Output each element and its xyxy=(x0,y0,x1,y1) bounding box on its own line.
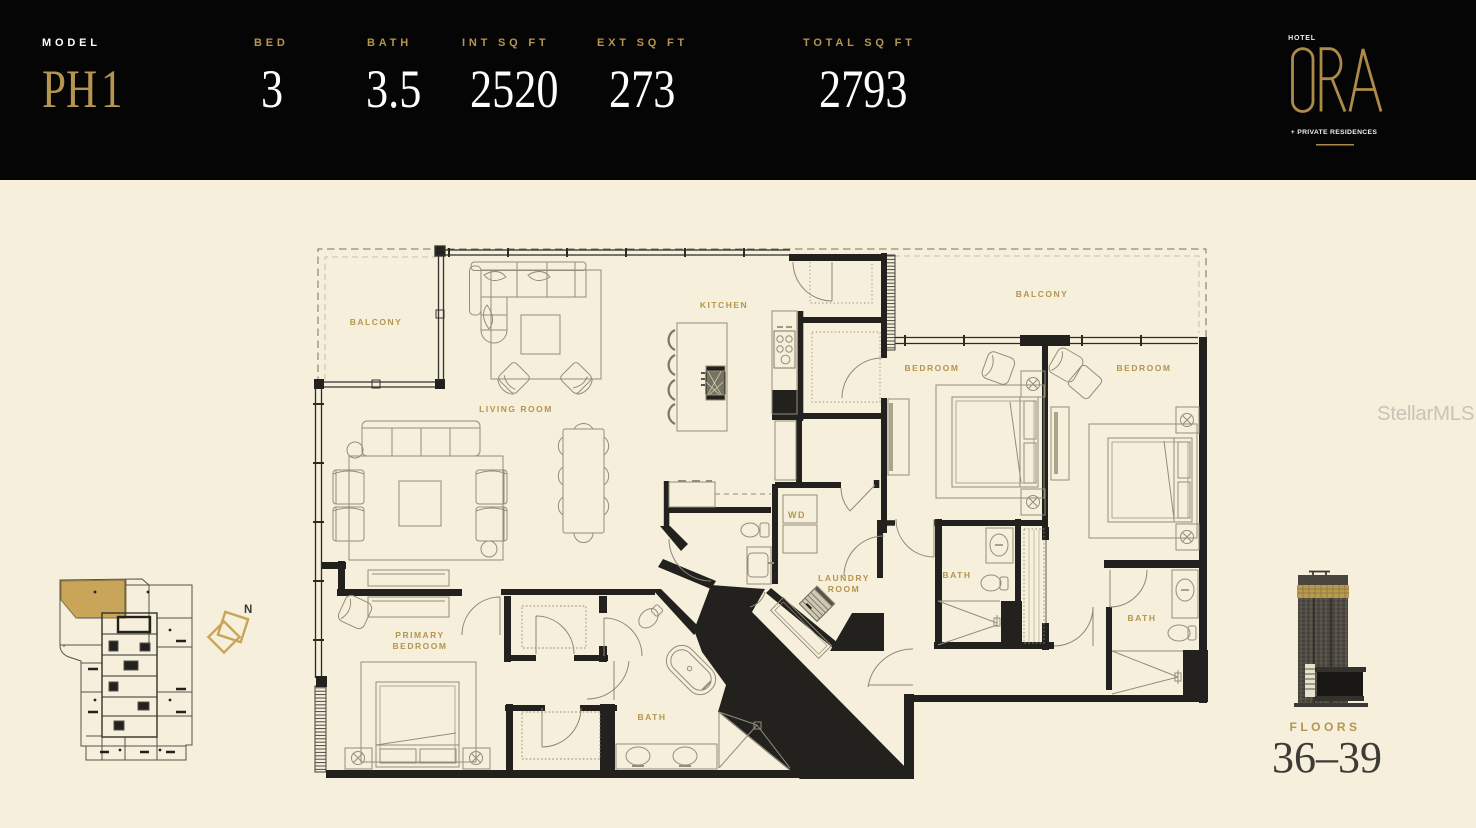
svg-text:KITCHEN: KITCHEN xyxy=(700,300,748,310)
svg-text:36–39: 36–39 xyxy=(1272,733,1382,782)
svg-text:BEDROOM: BEDROOM xyxy=(1117,363,1172,373)
svg-text:BATH: BATH xyxy=(638,712,667,722)
svg-text:BATH: BATH xyxy=(943,570,972,580)
svg-text:PRIMARY: PRIMARY xyxy=(395,630,444,640)
svg-text:StellarMLS: StellarMLS xyxy=(1377,402,1474,425)
svg-text:BEDROOM: BEDROOM xyxy=(905,363,960,373)
svg-text:BALCONY: BALCONY xyxy=(1016,289,1069,299)
svg-text:LIVING ROOM: LIVING ROOM xyxy=(479,404,553,414)
svg-text:ROOM: ROOM xyxy=(828,584,860,594)
svg-text:N: N xyxy=(244,604,252,616)
svg-text:BATH: BATH xyxy=(1128,613,1157,623)
svg-text:WD: WD xyxy=(788,510,806,520)
svg-text:BALCONY: BALCONY xyxy=(350,317,403,327)
svg-text:+ PRIVATE RESIDENCES: + PRIVATE RESIDENCES xyxy=(1291,129,1378,136)
svg-text:BEDROOM: BEDROOM xyxy=(393,641,448,651)
svg-text:HOTEL: HOTEL xyxy=(1288,35,1316,42)
svg-text:FLOORS: FLOORS xyxy=(1290,720,1361,734)
